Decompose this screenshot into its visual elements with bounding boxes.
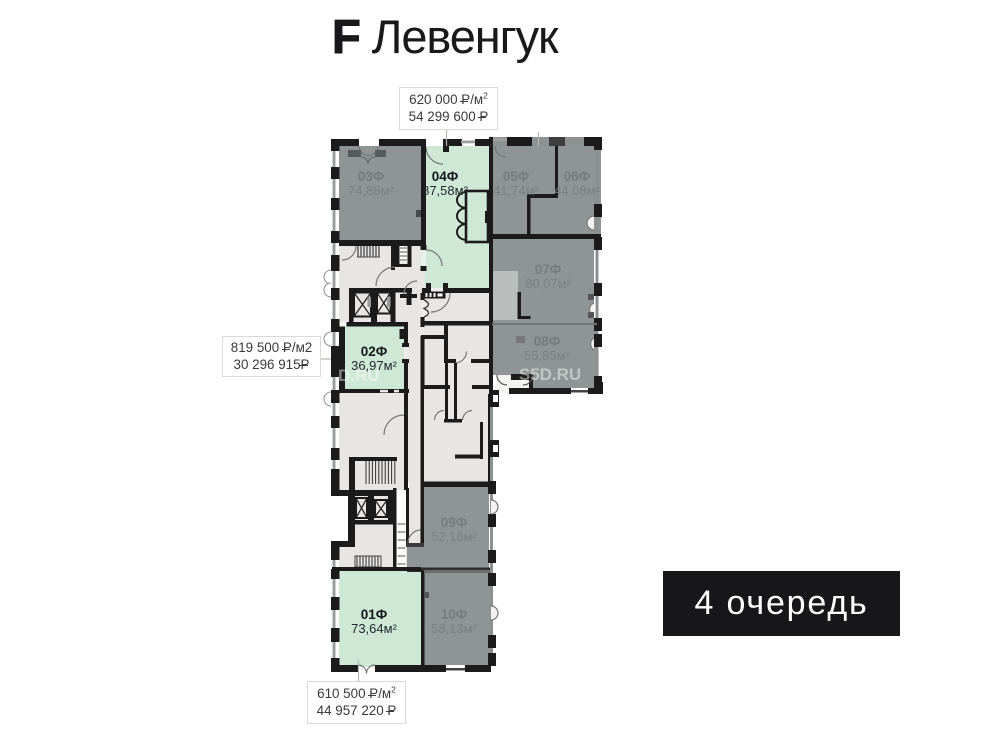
svg-text:D.RU: D.RU	[338, 366, 380, 385]
svg-text:74,88м²: 74,88м²	[348, 183, 394, 198]
svg-text:41,74м²: 41,74м²	[493, 183, 539, 198]
svg-text:80,07м²: 80,07м²	[525, 276, 571, 291]
svg-text:10Ф: 10Ф	[441, 607, 468, 622]
svg-text:09Ф: 09Ф	[441, 515, 468, 530]
svg-text:03Ф: 03Ф	[358, 169, 385, 184]
svg-text:02Ф: 02Ф	[361, 344, 388, 359]
svg-text:87,58м²: 87,58м²	[422, 183, 468, 198]
svg-text:73,64м²: 73,64м²	[351, 621, 397, 636]
svg-text:52,16м²: 52,16м²	[431, 529, 477, 544]
svg-text:08Ф: 08Ф	[534, 334, 561, 349]
svg-text:06Ф: 06Ф	[564, 169, 591, 184]
svg-text:58,13м²: 58,13м²	[431, 621, 477, 636]
svg-text:55,85м²: 55,85м²	[524, 348, 570, 363]
svg-text:44,08м²: 44,08м²	[554, 183, 600, 198]
svg-text:07Ф: 07Ф	[535, 262, 562, 277]
svg-text:05Ф: 05Ф	[503, 169, 530, 184]
svg-text:S5D.RU: S5D.RU	[519, 365, 581, 384]
svg-text:04Ф: 04Ф	[432, 169, 459, 184]
svg-text:01Ф: 01Ф	[361, 607, 388, 622]
